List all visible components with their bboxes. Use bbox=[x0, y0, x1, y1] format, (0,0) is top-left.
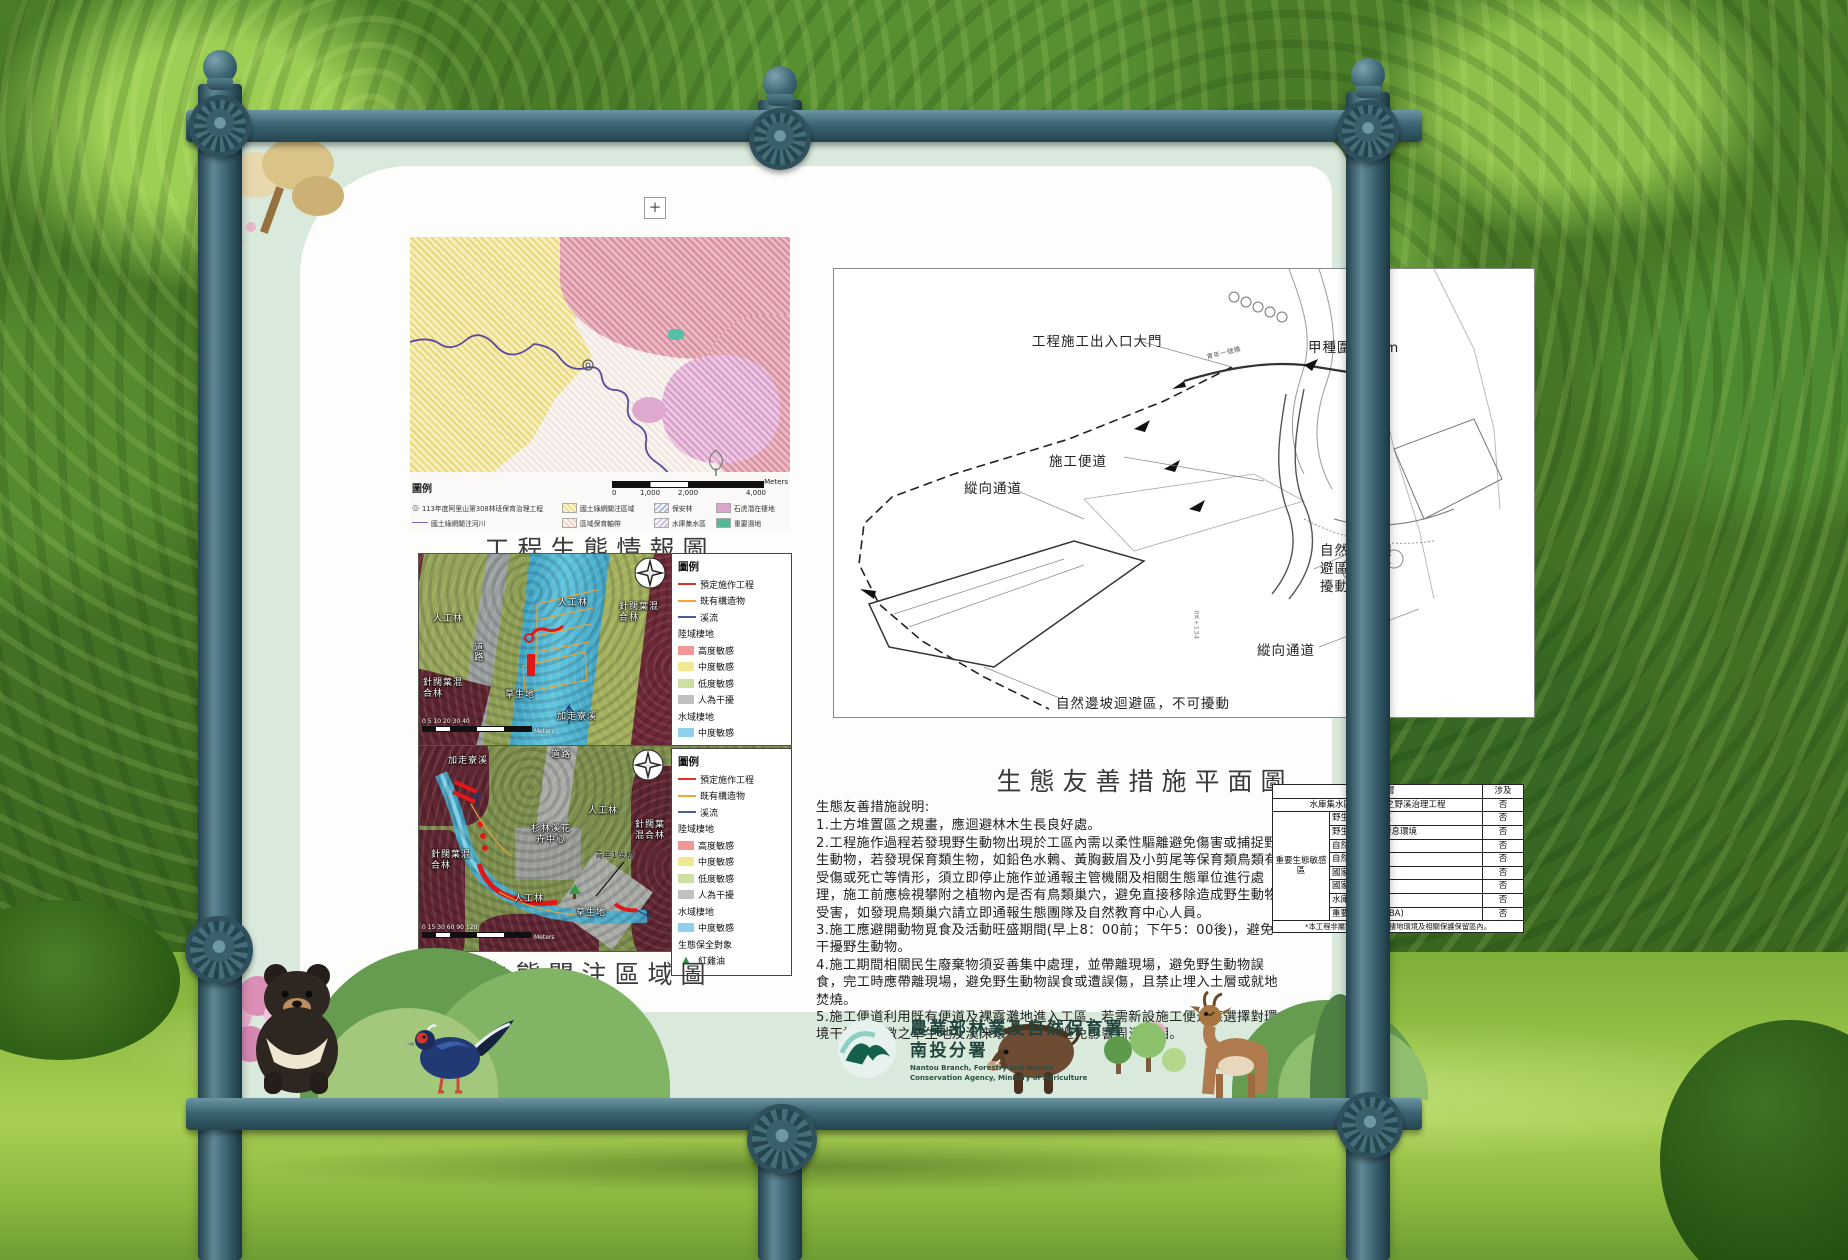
table-footnote-row: *本工程非屬野生動物重要棲地環境及相關保護保留區內。 bbox=[1273, 921, 1524, 933]
purple-line-swatch bbox=[412, 522, 428, 523]
legend-item-region: 國土綠網關注區域 bbox=[562, 500, 654, 515]
legend-item: 預定施作工程 bbox=[678, 773, 785, 786]
deco-tree-blob bbox=[292, 176, 344, 216]
plan-linework bbox=[834, 269, 1534, 717]
blue-line-swatch bbox=[678, 616, 696, 618]
scale-unit: Meters bbox=[764, 478, 788, 486]
legend-subheading: 水域棲地 bbox=[678, 905, 785, 918]
green-swatch bbox=[678, 679, 694, 688]
notes-item-3: 3.施工應避開動物覓食及活動旺盛期間(早上8：00前；下午5：00後)，避免干擾… bbox=[816, 922, 1278, 957]
map1-river-path bbox=[410, 237, 790, 479]
plan-label-temp-road: 施工便道 bbox=[1049, 450, 1107, 470]
map3-legend: 圖例 預定施作工程 既有構造物 溪流 陸域棲地 高度敏感 中度敏感 低度敏感 人… bbox=[671, 748, 792, 976]
map-label: 加走寮溪 bbox=[448, 756, 488, 767]
legend-item-project: ◎113年度阿里山第308林班保育治理工程 bbox=[412, 500, 562, 515]
legend-item-reservoir: 水庫集水區 bbox=[654, 515, 716, 530]
rosette-ornament bbox=[1337, 100, 1399, 162]
legend-item: 中度敏感 bbox=[678, 660, 785, 673]
eco-info-map bbox=[410, 237, 790, 479]
legend-subheading: 陸域棲地 bbox=[678, 822, 785, 835]
scale-bar bbox=[612, 481, 764, 488]
yellow-swatch bbox=[678, 857, 694, 866]
rosette-ornament bbox=[1337, 1092, 1403, 1158]
round-tree bbox=[1130, 1022, 1166, 1058]
agency-name-en: Nantou Branch, Forestry and Nature Conse… bbox=[910, 1064, 1125, 1084]
red-swatch bbox=[678, 646, 694, 655]
legend-item: 中度敏感 bbox=[678, 855, 785, 868]
map-label: 加走寮溪 bbox=[557, 712, 597, 723]
eco-friendly-plan-drawing: 青年一號橋 0K+134 bbox=[833, 268, 1535, 718]
table-header-row: 套疊圖層 涉及 bbox=[1273, 785, 1524, 799]
legend-item: 中度敏感 bbox=[678, 726, 785, 739]
agency-logo-text: 農業部林業及自然保育署 南投分署 Nantou Branch, Forestry… bbox=[910, 1018, 1125, 1084]
map-label: 草生地 bbox=[576, 908, 606, 919]
legend-subheading: 生態保全對象 bbox=[678, 938, 785, 951]
sensitive-area-table: 套疊圖層 涉及 水庫集水區保安林地之野溪治理工程 否 重要生態敏感區 野生動物保… bbox=[1272, 784, 1524, 933]
plan-label-passage-2: 縱向通道 bbox=[1257, 639, 1315, 659]
gray-swatch bbox=[678, 890, 694, 899]
blue-swatch bbox=[678, 728, 694, 737]
legend-item: 低度敏感 bbox=[678, 872, 785, 885]
table-row: 重要生態敏感區 野生動物保護區否 bbox=[1273, 812, 1524, 826]
map-label: 針闊葉混合林 bbox=[423, 678, 467, 701]
legend-heading: 圖例 bbox=[678, 754, 785, 769]
post-finial-neck-left bbox=[207, 78, 233, 90]
legend-item-belt: 區域保育軸帶 bbox=[562, 515, 654, 530]
legend-item: 溪流 bbox=[678, 806, 785, 819]
scale-ticks: 0 5 10 20 30 40 bbox=[422, 718, 470, 725]
gray-swatch bbox=[678, 695, 694, 704]
orange-line-swatch bbox=[678, 600, 696, 602]
map-label: 杉林溪花卉中心 bbox=[527, 824, 575, 847]
agency-branch-zh: 南投分署 bbox=[910, 1040, 1125, 1062]
pink-swatch bbox=[716, 503, 731, 513]
pheasant-illustration bbox=[398, 996, 518, 1098]
legend-item: 預定施作工程 bbox=[678, 578, 785, 591]
blue-swatch bbox=[678, 923, 694, 932]
blue-line-swatch bbox=[678, 811, 696, 813]
deco-flower-dot bbox=[246, 222, 256, 232]
scale-bar bbox=[422, 726, 532, 732]
legend-item-forest: 保安林 bbox=[654, 500, 716, 515]
deer-illustration bbox=[1176, 990, 1276, 1098]
map-label: 人工林 bbox=[558, 598, 588, 609]
rosette-ornament bbox=[189, 95, 251, 157]
red-swatch bbox=[678, 841, 694, 850]
legend-item: 低度敏感 bbox=[678, 677, 785, 690]
legend-item-river: 國土綠網關注河川 bbox=[412, 515, 562, 530]
green-swatch bbox=[716, 518, 731, 528]
rosette-ornament bbox=[185, 916, 253, 984]
legend-item: 既有構造物 bbox=[678, 789, 785, 802]
legend-item: 高度敏感 bbox=[678, 839, 785, 852]
yellow-swatch bbox=[678, 662, 694, 671]
scale-ticks: 0 15 30 60 90 120 bbox=[422, 924, 477, 931]
legend-item-wetland: 重要濕地 bbox=[716, 515, 792, 530]
map-label: 道路 bbox=[471, 642, 482, 662]
ring-marker-icon: ◎ bbox=[412, 504, 419, 512]
plan-label-gate: 工程施工出入口大門 bbox=[1032, 330, 1163, 350]
notes-item-2: 2.工程施作過程若發現野生動物出現於工區內需以柔性驅離避免傷害或捕捉野生動物，若… bbox=[816, 835, 1278, 922]
plan-label-passage-1: 縱向通道 bbox=[964, 477, 1022, 497]
notes-heading: 生態友善措施說明: bbox=[816, 799, 1278, 816]
agency-logo-mark-icon bbox=[836, 1018, 898, 1080]
red-line-swatch bbox=[678, 778, 696, 780]
legend-item: 既有構造物 bbox=[678, 594, 785, 607]
map1-legend: 圖例 Meters 0 1,000 2,000 4,000 ◎113年度阿里山第… bbox=[410, 472, 790, 532]
group-label: 重要生態敏感區 bbox=[1273, 812, 1330, 921]
plan-label-avoid-2: 自然邊坡迴避區，不可擾動 bbox=[1056, 692, 1230, 712]
map1-legend-heading: 圖例 bbox=[412, 480, 432, 495]
map-label: 針闊葉混合林 bbox=[635, 820, 673, 843]
sign-post-left bbox=[198, 84, 242, 1260]
legend-subheading: 水域棲地 bbox=[678, 710, 785, 723]
map-label: 針闊葉混合林 bbox=[431, 850, 475, 873]
map-label: 針闊葉混合林 bbox=[619, 602, 663, 625]
park-sign-photo: + 圖例 Meters 0 1,000 2,000 4,000 ◎113年度阿里… bbox=[0, 0, 1848, 1260]
agency-logo: 農業部林業及自然保育署 南投分署 Nantou Branch, Forestry… bbox=[836, 1018, 1125, 1084]
legend-item: 溪流 bbox=[678, 611, 785, 624]
scale-tick: 0 bbox=[612, 489, 616, 497]
map1-scale-bar: Meters 0 1,000 2,000 4,000 bbox=[612, 472, 788, 496]
compass-icon bbox=[633, 556, 667, 594]
map2-legend: 圖例 預定施作工程 既有構造物 溪流 陸域棲地 高度敏感 中度敏感 低度敏感 人… bbox=[671, 553, 792, 747]
map-label: 道路 bbox=[551, 750, 571, 761]
red-line-swatch bbox=[678, 583, 696, 585]
post-finial-neck-right bbox=[1355, 86, 1381, 98]
yellow-hatch-swatch bbox=[562, 503, 577, 513]
map2-scale-bar: 0 5 10 20 30 40 Meters bbox=[422, 718, 532, 732]
pale-hatch-swatch bbox=[562, 518, 577, 528]
scale-tick: 2,000 bbox=[678, 489, 698, 497]
purple-hatch-swatch bbox=[654, 518, 669, 528]
legend-item: 人為干擾 bbox=[678, 888, 785, 901]
map-label: 人工林 bbox=[588, 806, 618, 817]
legend-subheading: 陸域棲地 bbox=[678, 627, 785, 640]
compass-icon bbox=[631, 748, 665, 786]
map-label: 人工林 bbox=[514, 894, 544, 905]
legend-heading: 圖例 bbox=[678, 559, 785, 574]
map3-scale-bar: 0 15 30 60 90 120 Meters bbox=[422, 924, 532, 938]
legend-item-leopardcat: 石虎潛在棲地 bbox=[716, 500, 792, 515]
map-label: 草生地 bbox=[505, 690, 535, 701]
plan-station-label: 0K+134 bbox=[1193, 610, 1201, 639]
map1-legend-items: ◎113年度阿里山第308林班保育治理工程 國土綠網關注區域 保安林 石虎潛在棲… bbox=[412, 500, 790, 530]
notes-item-1: 1.土方堆置區之規畫，應迴避林木生長良好處。 bbox=[816, 817, 1278, 834]
legend-item: 高度敏感 bbox=[678, 644, 785, 657]
scale-unit: Meters bbox=[534, 934, 555, 941]
legend-item: 中度敏感 bbox=[678, 921, 785, 934]
orange-line-swatch bbox=[678, 795, 696, 797]
scale-bar bbox=[422, 932, 532, 938]
legend-item: 人為干擾 bbox=[678, 693, 785, 706]
map-label: 青年1號橋 bbox=[595, 850, 635, 861]
map-label: 人工林 bbox=[433, 614, 463, 625]
sign-post-right bbox=[1346, 92, 1390, 1260]
tree-sketch-icon bbox=[703, 448, 729, 478]
blue-hatch-swatch bbox=[654, 503, 669, 513]
rosette-ornament bbox=[747, 1104, 817, 1174]
map-zoom-plus-icon: + bbox=[644, 197, 666, 219]
header-involved: 涉及 bbox=[1483, 785, 1524, 799]
agency-name-zh: 農業部林業及自然保育署 bbox=[910, 1018, 1125, 1040]
black-bear-illustration bbox=[240, 948, 352, 1094]
rosette-ornament bbox=[749, 108, 811, 170]
scale-unit: Meters bbox=[534, 728, 555, 735]
scale-tick: 4,000 bbox=[746, 489, 766, 497]
post-finial-neck-center bbox=[767, 94, 793, 106]
scale-tick: 1,000 bbox=[640, 489, 660, 497]
green-swatch bbox=[678, 874, 694, 883]
table-row: 水庫集水區保安林地之野溪治理工程 否 bbox=[1273, 798, 1524, 812]
